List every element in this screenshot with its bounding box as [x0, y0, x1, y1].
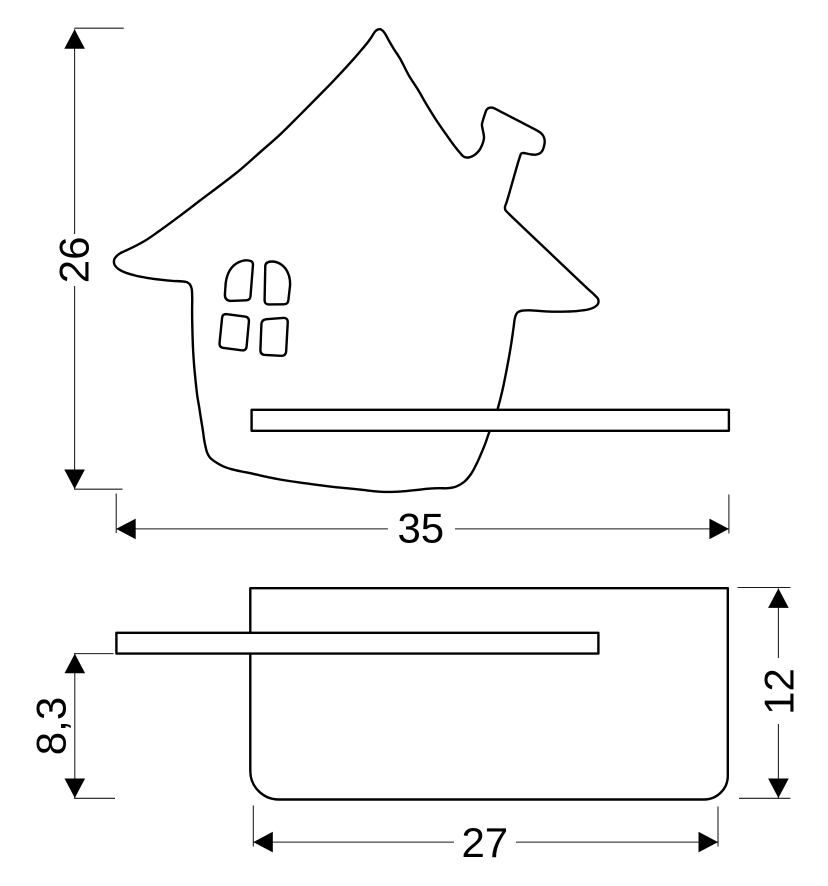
svg-text:8,3: 8,3	[27, 697, 74, 755]
svg-text:26: 26	[50, 237, 97, 284]
svg-text:27: 27	[461, 819, 508, 866]
svg-text:12: 12	[755, 668, 802, 715]
svg-text:35: 35	[397, 505, 444, 552]
